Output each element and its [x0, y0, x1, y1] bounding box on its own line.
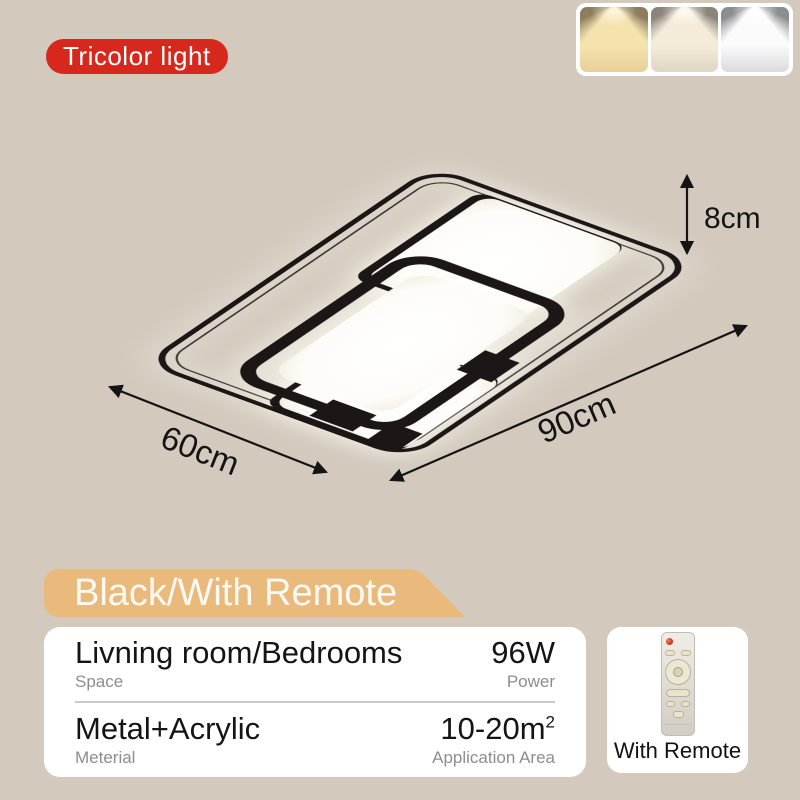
spec-area-label: Application Area [432, 748, 555, 768]
spec-area: 10-20m2 Application Area [432, 712, 555, 777]
spec-power-label: Power [507, 672, 555, 692]
remote-card: With Remote [607, 627, 748, 773]
remote-button-icon [681, 650, 691, 656]
spec-card: Livning room/Bedrooms Space 96W Power Me… [44, 627, 586, 777]
length-dimension-label: 90cm [532, 384, 621, 450]
product-image-page: { "colors": { "background": "#d3cabd", "… [0, 0, 800, 800]
remote-button-icon [666, 701, 675, 707]
spec-area-value-text: 10-20m [440, 711, 545, 746]
width-dimension-label: 60cm [156, 418, 245, 482]
spec-area-value-sup: 2 [546, 713, 555, 732]
spec-space-label: Space [75, 672, 402, 692]
spec-space-value: Livning room/Bedrooms [75, 636, 402, 670]
height-dimension-label: 8cm [704, 202, 761, 235]
remote-wide-button-icon [666, 689, 690, 697]
spec-power: 96W Power [491, 636, 555, 701]
spec-power-value: 96W [491, 636, 555, 670]
ceiling-lamp-diagram: 8cm 60cm 90cm [0, 0, 800, 560]
remote-power-button-icon [666, 638, 673, 645]
remote-dpad-center-icon [673, 667, 683, 677]
remote-card-label: With Remote [614, 738, 741, 764]
spec-space: Livning room/Bedrooms Space [75, 636, 402, 701]
remote-dpad-icon [665, 659, 691, 685]
remote-button-icon [665, 650, 675, 656]
spec-material-label: Meterial [75, 748, 260, 768]
spec-row-material-area: Metal+Acrylic Meterial 10-20m2 Applicati… [44, 703, 586, 777]
remote-button-icon [681, 701, 690, 707]
variant-banner: Black/With Remote [44, 569, 465, 617]
remote-seam-line [664, 724, 692, 725]
spec-material: Metal+Acrylic Meterial [75, 712, 260, 777]
remote-button-icon [673, 711, 684, 718]
remote-control-image [661, 632, 695, 736]
spec-area-value: 10-20m2 [440, 712, 555, 746]
variant-banner-label: Black/With Remote [74, 572, 397, 615]
spec-material-value: Metal+Acrylic [75, 712, 260, 746]
spec-row-space-power: Livning room/Bedrooms Space 96W Power [44, 627, 586, 701]
